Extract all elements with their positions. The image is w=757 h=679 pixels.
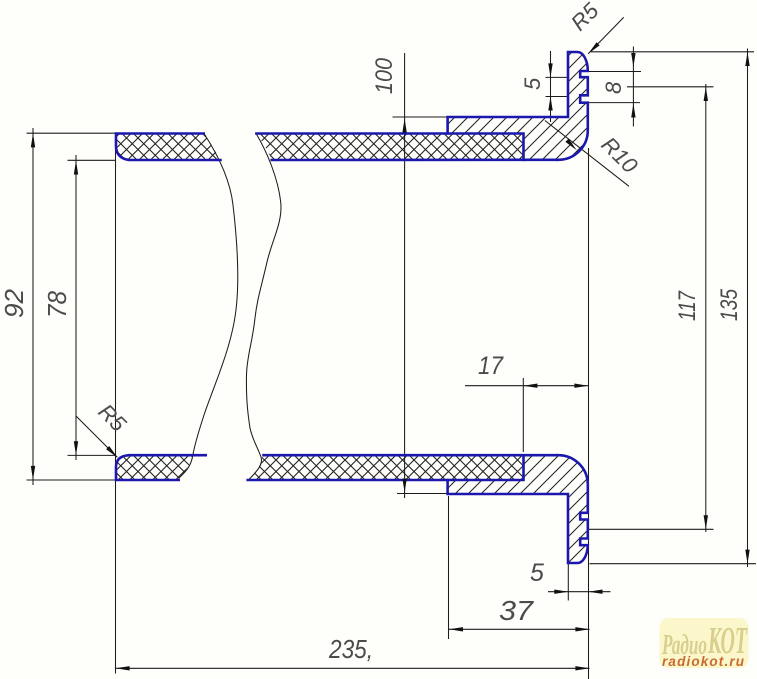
svg-text:8: 8 bbox=[601, 81, 626, 94]
svg-text:5: 5 bbox=[530, 559, 544, 587]
svg-text:37: 37 bbox=[499, 595, 535, 626]
svg-text:235,: 235, bbox=[328, 634, 373, 664]
svg-text:17: 17 bbox=[478, 352, 504, 380]
svg-text:5: 5 bbox=[520, 77, 545, 90]
svg-text:117: 117 bbox=[674, 290, 701, 321]
svg-text:100: 100 bbox=[371, 57, 398, 94]
svg-text:78: 78 bbox=[42, 290, 72, 318]
svg-text:92: 92 bbox=[0, 288, 29, 318]
svg-text:radiokot.ru: radiokot.ru bbox=[662, 654, 745, 669]
svg-text:135: 135 bbox=[716, 288, 743, 321]
